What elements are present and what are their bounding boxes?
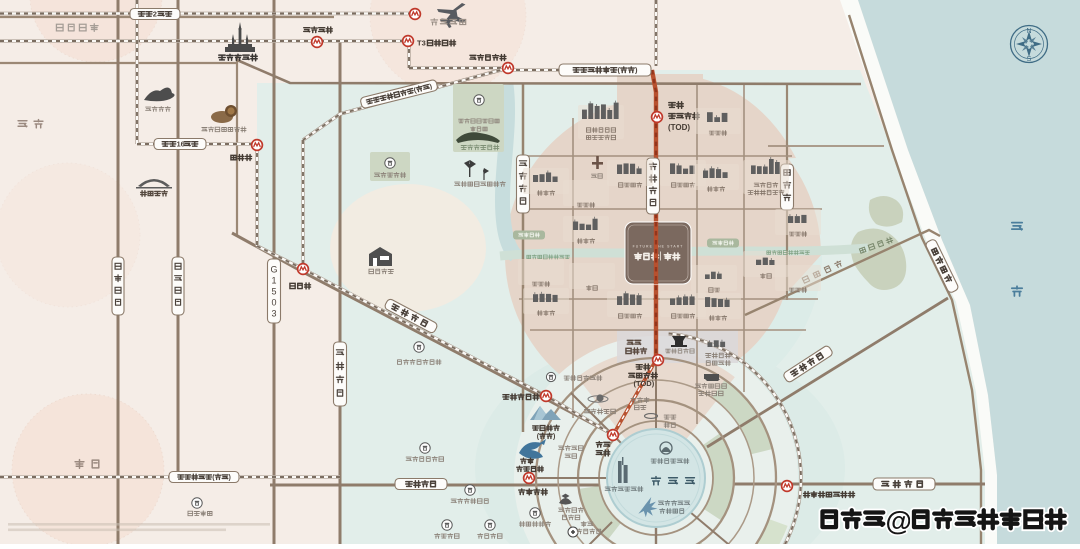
svg-text:G: G — [270, 265, 277, 275]
svg-text:5: 5 — [271, 287, 276, 297]
svg-text:1: 1 — [271, 276, 276, 286]
svg-text:(TOD): (TOD) — [634, 379, 655, 388]
svg-text:S: S — [1027, 56, 1032, 63]
svg-text:@: @ — [886, 506, 912, 536]
svg-text:3: 3 — [271, 309, 276, 319]
svg-text:0: 0 — [271, 298, 276, 308]
svg-text:16: 16 — [177, 140, 185, 149]
svg-text:N: N — [1026, 28, 1031, 35]
svg-text:(TOD): (TOD) — [668, 123, 690, 132]
svg-text:2: 2 — [153, 10, 157, 19]
svg-text:): ) — [229, 474, 231, 481]
svg-text:): ) — [553, 433, 555, 440]
svg-text:T3: T3 — [417, 39, 426, 48]
